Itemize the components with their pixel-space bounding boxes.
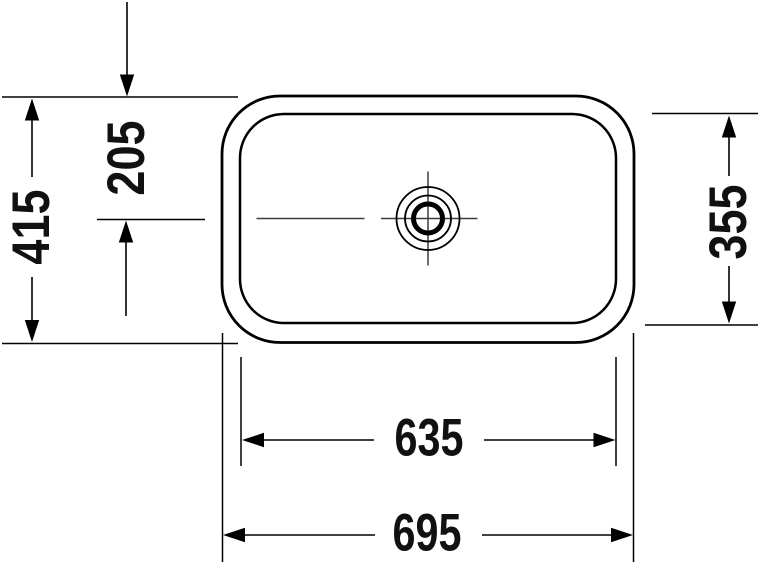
dim-label-bowl-depth: 355 [698,184,757,259]
dim-355-top-arrowhead [722,116,736,138]
dim-label-edge-to-drain-center: 205 [96,120,155,195]
dim-695-right-arrowhead [611,528,633,542]
dim-635-left-arrowhead [242,433,264,447]
dim-415-top-arrowhead [25,99,39,121]
dim-695-left-arrowhead [223,528,245,542]
dim-label-overall-depth: 415 [1,189,60,264]
dim-205-top-arrowhead [120,75,134,97]
dim-355-bottom-arrowhead [722,302,736,324]
dim-635-right-arrowhead [594,433,616,447]
washbasin-dimension-drawing: 205 415 355 635 695 [0,0,762,567]
dim-415-bottom-arrowhead [25,320,39,342]
dim-205-bottom-arrowhead [119,221,133,243]
drawing-canvas: 205 415 355 635 695 [0,0,762,567]
dim-label-overall-width: 695 [393,503,462,562]
dim-label-bowl-width: 635 [395,408,464,467]
